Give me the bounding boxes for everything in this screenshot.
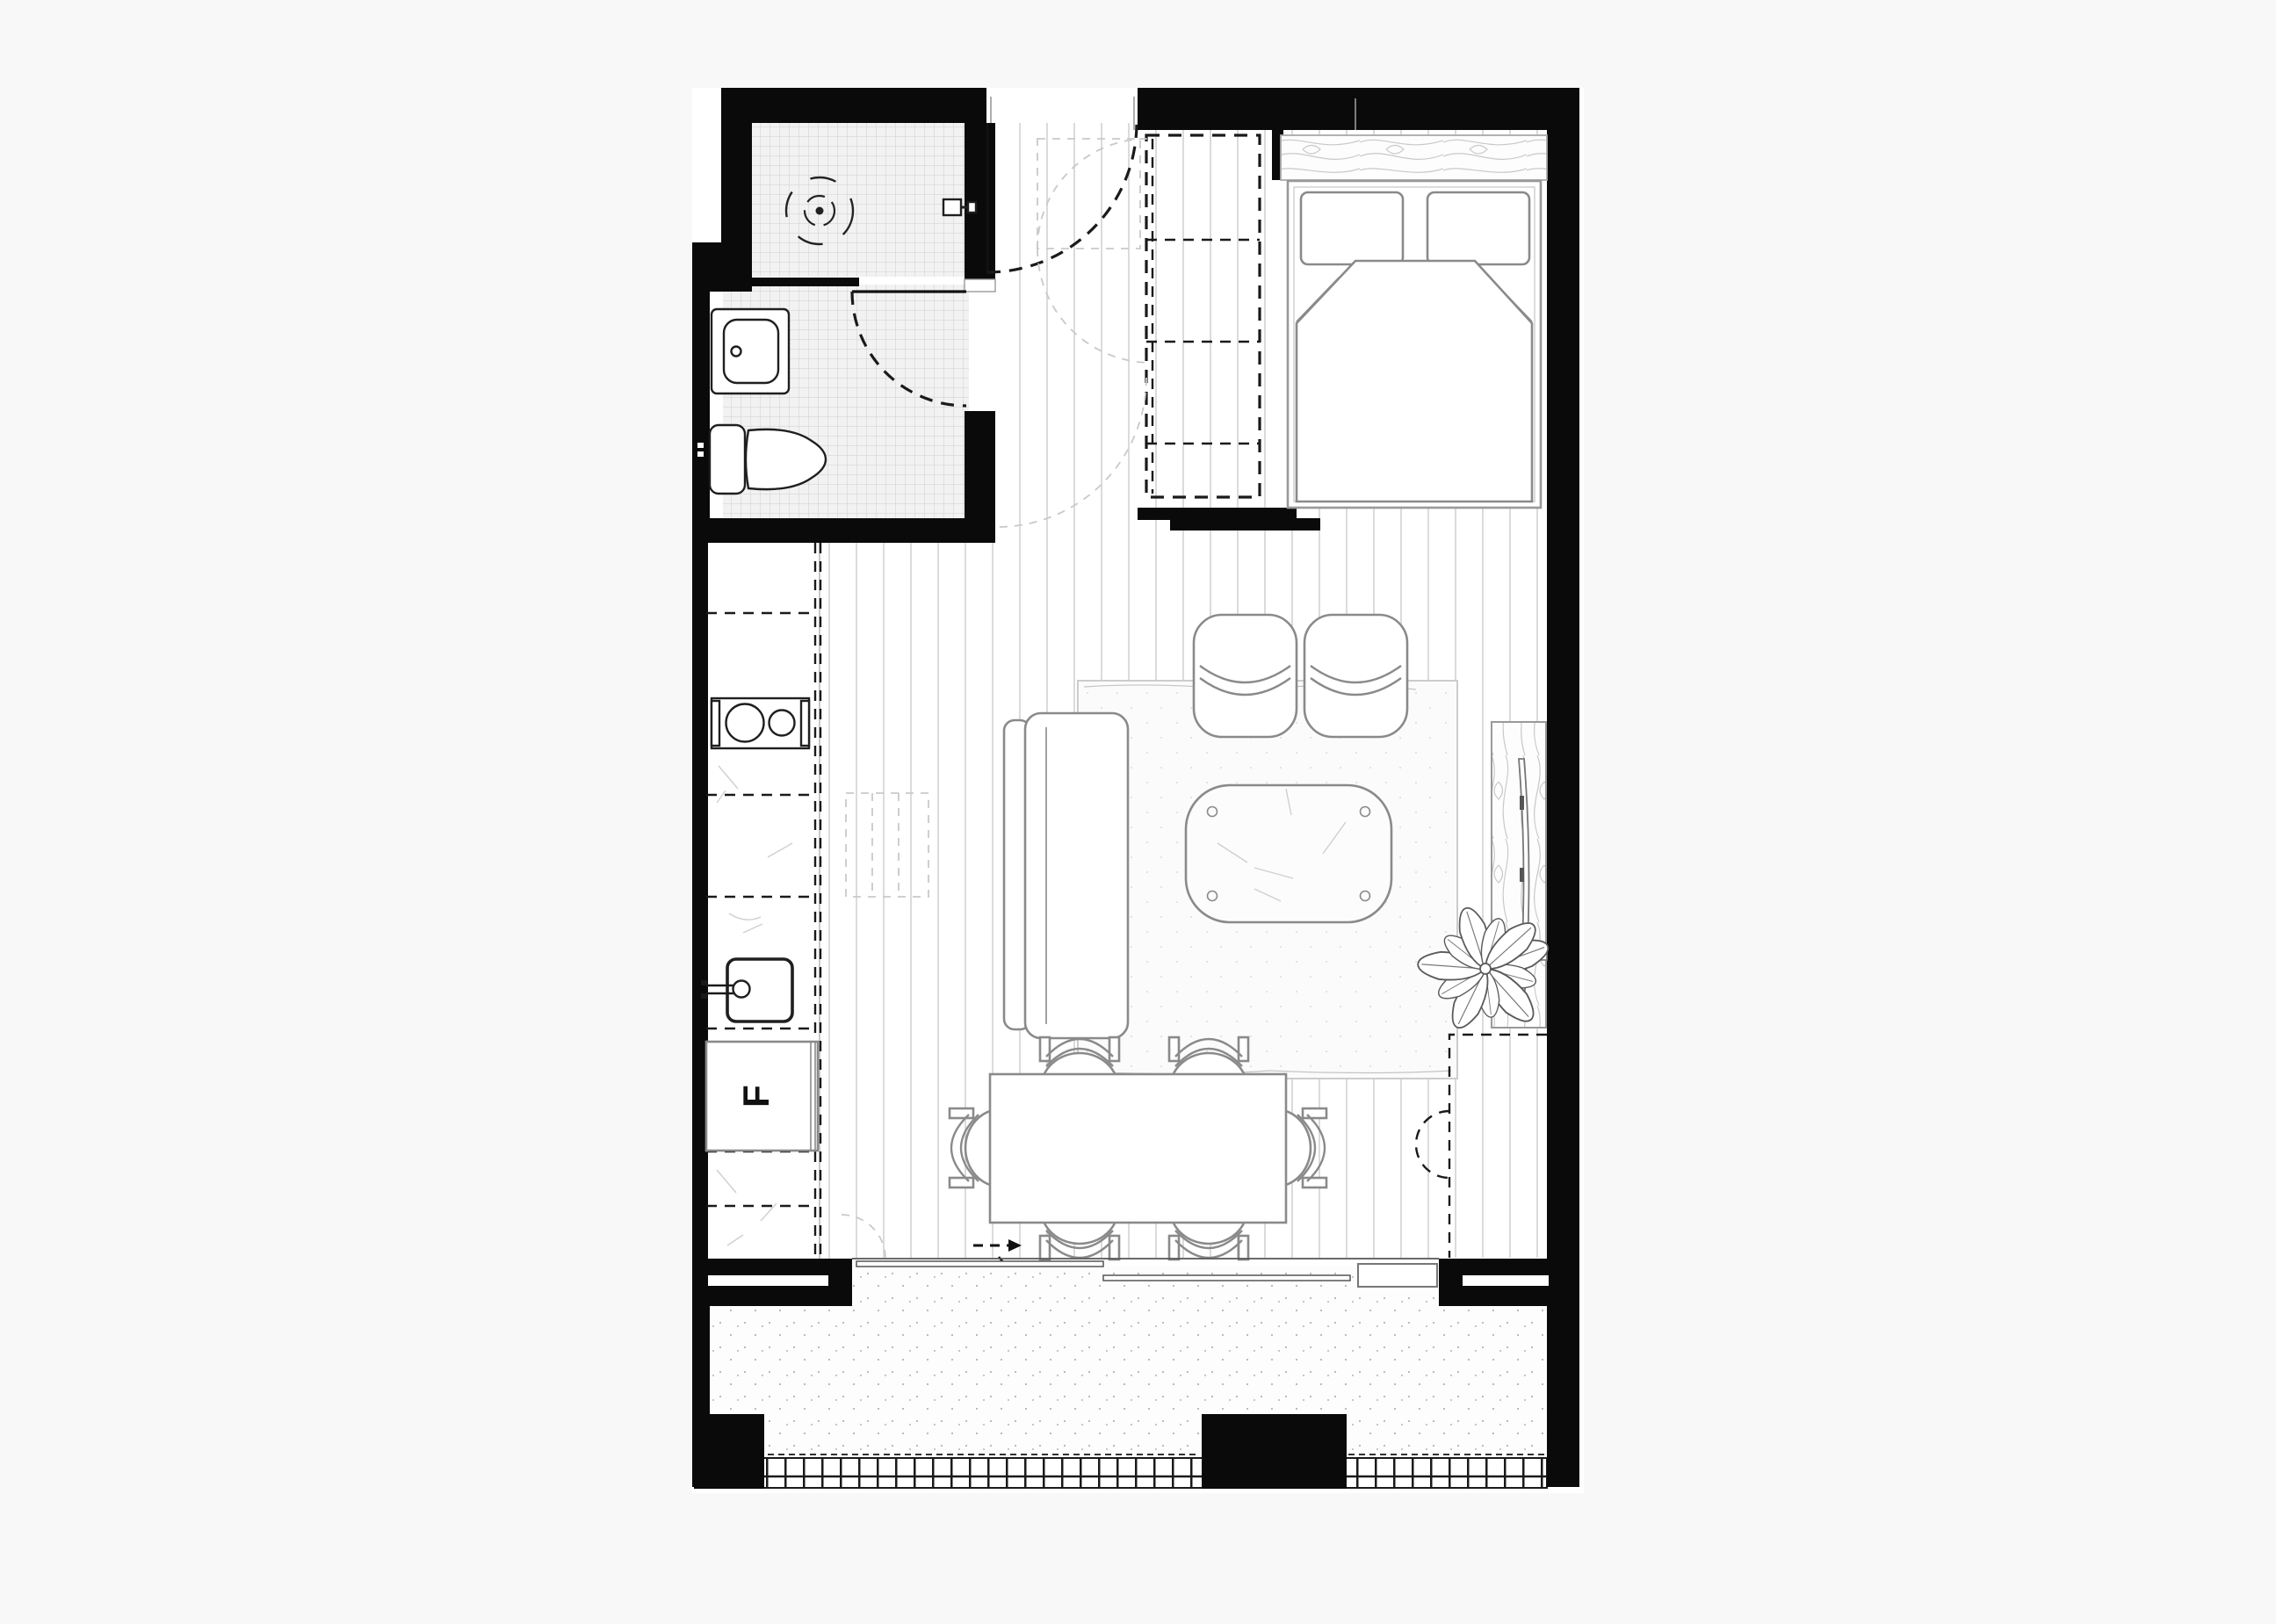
fridge-label: F (735, 1085, 777, 1108)
bed (1288, 181, 1541, 508)
coffee-table (1186, 785, 1391, 922)
duvet (1297, 261, 1532, 502)
balcony (710, 1454, 1547, 1488)
floor-plan: F (692, 88, 1584, 1493)
wall-shower-divider (692, 278, 859, 286)
wall-entry-living-a (1138, 508, 1297, 520)
shower-mixer-icon (943, 199, 976, 215)
burner-small (770, 711, 795, 736)
wall-left-bathroom (692, 292, 710, 543)
bedroom (1281, 135, 1547, 508)
pier-left-window-slot (708, 1275, 828, 1286)
pillow-right (1427, 192, 1529, 264)
tv-bracket (1520, 796, 1524, 810)
dining-table (990, 1074, 1286, 1223)
tap-handle (733, 981, 750, 998)
balcony-pier-bottom-left (694, 1414, 764, 1489)
wall-left-shower (721, 123, 752, 292)
pier-right-window-slot (1463, 1275, 1549, 1286)
burner-large (726, 704, 764, 742)
tv-bracket (1520, 868, 1524, 882)
shower-tile-floor (752, 123, 969, 277)
armchair-1 (1194, 615, 1297, 737)
sliding-panel-1 (856, 1261, 1103, 1267)
wall-entry-living-b (1170, 518, 1320, 531)
floor-plan-svg: F (692, 88, 1584, 1493)
sliding-panel-2 (1103, 1275, 1350, 1281)
balcony-pier-bottom-middle (1202, 1414, 1347, 1489)
balustrade (710, 1458, 1547, 1488)
sofa (1004, 713, 1128, 1038)
balcony-door-panel (1358, 1264, 1437, 1287)
pillow-left (1301, 192, 1403, 264)
sofa-seat (1025, 713, 1128, 1038)
headboard-panel (1281, 135, 1547, 180)
fridge: F (706, 1042, 818, 1151)
bathroom-door-threshold (965, 279, 995, 292)
page: { "page": { "title": "Studio Apartment F… (0, 0, 2276, 1624)
wall-bathroom-bottom (692, 518, 995, 543)
flush-button (697, 451, 704, 457)
wall-top-right (1138, 88, 1579, 130)
armchair-2 (1304, 615, 1407, 737)
cooktop (712, 698, 809, 748)
bathroom-vanity-sink (712, 309, 789, 393)
flush-button (697, 443, 704, 448)
wall-top-left (721, 88, 986, 123)
